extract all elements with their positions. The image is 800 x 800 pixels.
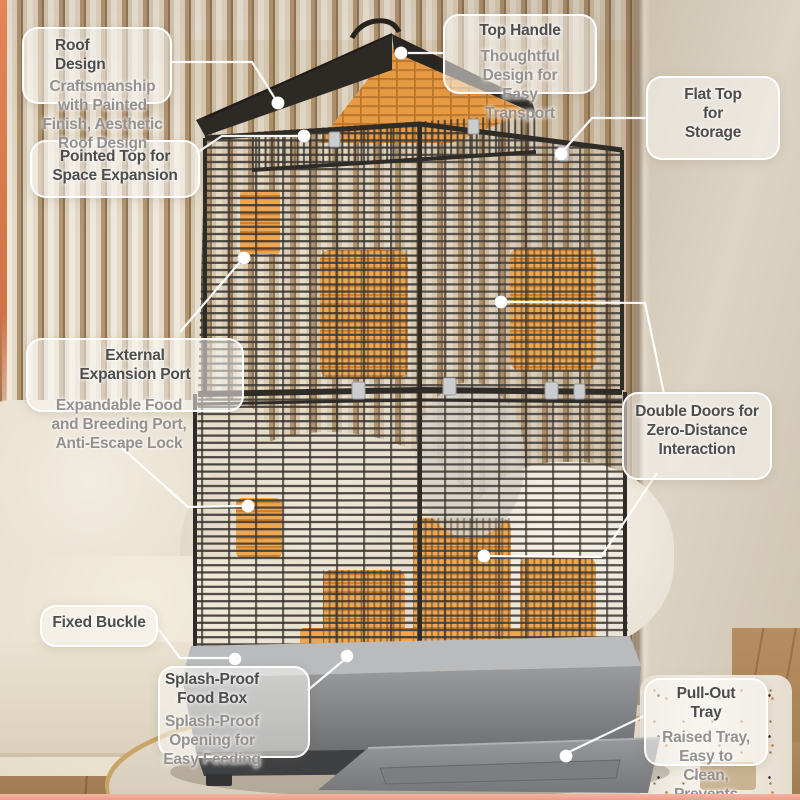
- callout-title-fixed-buckle: Fixed Buckle: [47, 613, 151, 632]
- anchor-dot-pull-out-tray: [560, 750, 573, 763]
- pointer-line-external-upper: [180, 262, 240, 332]
- anchor-dot-pointed-top: [298, 130, 311, 143]
- callout-title-pull-out-tray: Pull-Out Tray: [666, 684, 746, 722]
- anchor-dot-external-upper: [238, 252, 251, 265]
- pointer-line-splash-proof: [308, 660, 344, 690]
- callout-subtitle-roof-design: Craftsmanship with Painted Finish, Aesth…: [35, 77, 170, 153]
- pointer-line-doors-upper: [506, 302, 664, 394]
- callout-subtitle-top-handle: Thoughtful Design for Easy Transport: [478, 47, 562, 123]
- anchor-dots: [229, 47, 573, 763]
- anchor-dot-fixed-buckle: [229, 653, 242, 666]
- callout-title-double-doors: Double Doors for Zero-Distance Interacti…: [632, 402, 762, 459]
- bottom-edge-strip: [0, 794, 800, 800]
- anchor-dot-roof-design: [272, 97, 285, 110]
- callout-subtitle-splash-proof: Splash-Proof Opening for Easy Feeding: [162, 712, 262, 769]
- anchor-dot-splash-proof: [341, 650, 354, 663]
- pointer-line-fixed-buckle: [156, 626, 230, 658]
- anchor-dot-doors-lower: [478, 550, 491, 563]
- pointer-line-pull-out-tray: [569, 716, 644, 752]
- anchor-dot-flat-top: [555, 148, 568, 161]
- callout-subtitle-external-expansion: Expandable Food and Breeding Port, Anti-…: [48, 396, 190, 453]
- pointer-line-external-lower: [123, 449, 243, 507]
- product-annotation-image: Roof Design Craftsmanship with Painted F…: [0, 0, 800, 800]
- callout-title-pointed-top: Pointed Top for Space Expansion: [50, 147, 180, 185]
- pointer-line-roof-design: [172, 62, 276, 100]
- anchor-dot-external-lower: [242, 500, 255, 513]
- pointer-line-flat-top: [564, 118, 646, 150]
- callout-title-external-expansion: External Expansion Port: [75, 346, 195, 384]
- anchor-dot-doors-upper: [495, 296, 508, 309]
- callout-title-top-handle: Top Handle: [450, 21, 590, 40]
- pointer-line-doors-lower: [489, 473, 657, 557]
- callout-title-splash-proof: Splash-Proof Food Box: [157, 670, 267, 708]
- callout-title-roof-design: Roof Design: [55, 36, 125, 74]
- pointer-line-pointed-top: [198, 136, 298, 152]
- callout-title-flat-top: Flat Top for Storage: [678, 85, 748, 142]
- anchor-dot-top-handle: [395, 47, 408, 60]
- callout-subtitle-pull-out-tray: Raised Tray, Easy to Clean, Prevents: [656, 728, 756, 800]
